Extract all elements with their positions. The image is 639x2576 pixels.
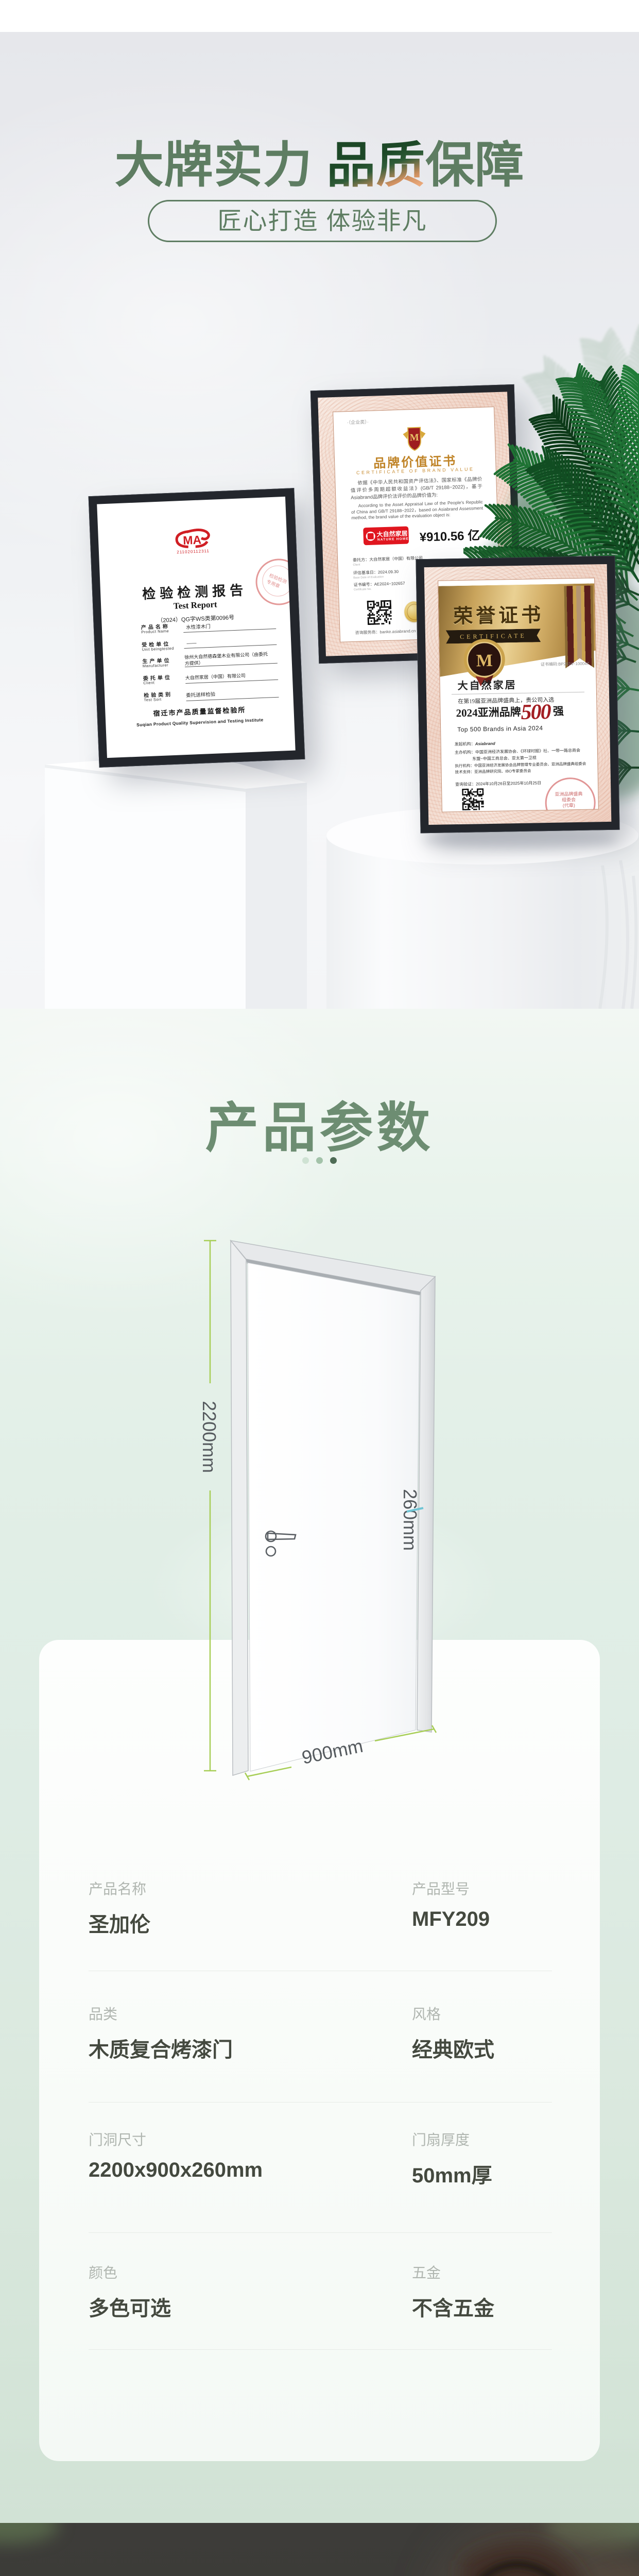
svg-text:M: M (409, 432, 419, 444)
svg-text:211020112311: 211020112311 (177, 549, 210, 555)
svg-text:2200mm: 2200mm (199, 1401, 220, 1473)
svg-text:MA: MA (183, 533, 202, 547)
svg-text:260mm: 260mm (400, 1489, 421, 1551)
